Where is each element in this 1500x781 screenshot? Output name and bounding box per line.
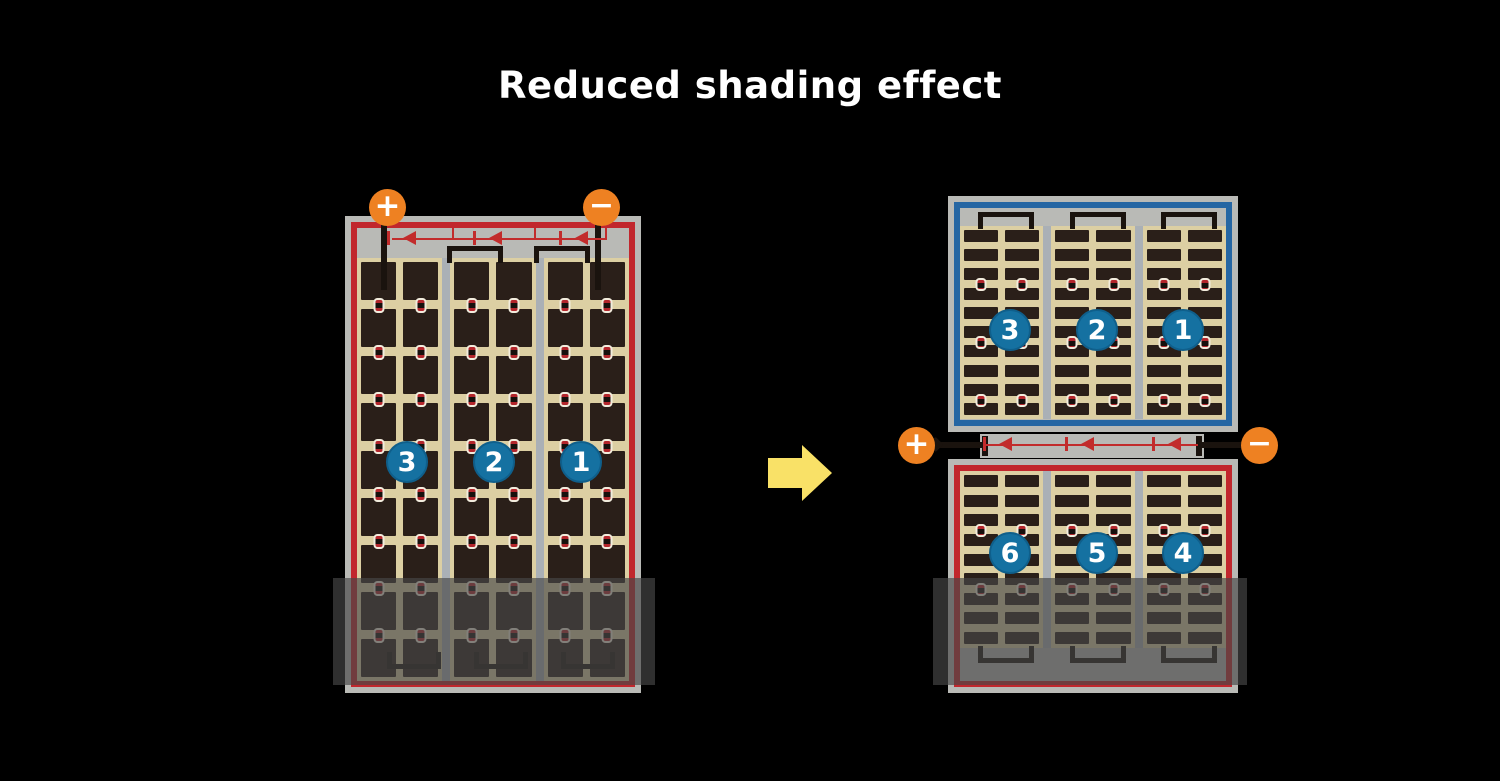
transition-arrow-icon <box>802 445 832 501</box>
terminal-negative: − <box>583 189 620 226</box>
solar-cell <box>1188 514 1222 526</box>
group-number-badge: 2 <box>473 441 515 483</box>
bypass-diode-icon <box>999 437 1012 451</box>
solar-cell <box>496 309 531 347</box>
reduced-shading-diagram: Reduced shading effect + − 3 2 1 <box>0 0 1500 781</box>
solar-cell <box>1096 249 1130 261</box>
solar-cell <box>454 498 489 536</box>
solar-cell <box>454 356 489 394</box>
group-number-badge: 2 <box>1076 309 1118 351</box>
solar-cell <box>964 249 998 261</box>
terminal-negative: − <box>1241 427 1278 464</box>
diode-tap-tick <box>534 228 536 238</box>
group-number-badge: 3 <box>386 441 428 483</box>
solar-cell <box>548 262 583 300</box>
group-number-badge: 6 <box>989 532 1031 574</box>
shading-overlay <box>333 578 655 685</box>
solar-cell <box>1096 475 1130 487</box>
solar-cell <box>590 309 625 347</box>
bypass-diode-icon <box>489 231 502 245</box>
solar-cell <box>1147 514 1181 526</box>
solar-cell <box>1188 475 1222 487</box>
plus-icon: + <box>904 429 930 460</box>
terminal-positive: + <box>369 189 406 226</box>
solar-cell <box>1055 384 1089 396</box>
bypass-diode-icon <box>575 231 588 245</box>
terminal-stem <box>595 222 601 290</box>
solar-cell <box>1188 249 1222 261</box>
solar-cell <box>1055 475 1089 487</box>
solar-cell <box>1147 384 1181 396</box>
plus-icon: + <box>375 191 401 222</box>
solar-cell <box>1188 230 1222 242</box>
terminal-positive: + <box>898 427 935 464</box>
solar-cell <box>1147 230 1181 242</box>
solar-cell <box>964 384 998 396</box>
solar-cell <box>964 475 998 487</box>
solar-cell <box>964 230 998 242</box>
solar-cell <box>1096 268 1130 280</box>
solar-cell <box>361 403 396 441</box>
page-title: Reduced shading effect <box>0 64 1500 107</box>
solar-cell <box>964 268 998 280</box>
group-number-badge: 5 <box>1076 532 1118 574</box>
series-bridge-top <box>1070 212 1126 229</box>
solar-cell <box>548 403 583 441</box>
solar-cell <box>1147 249 1181 261</box>
minus-icon: − <box>589 191 614 221</box>
solar-cell <box>361 498 396 536</box>
solar-cell <box>548 356 583 394</box>
group-number-badge: 4 <box>1162 532 1204 574</box>
bypass-diode-icon <box>1168 437 1181 451</box>
series-bridge-top <box>447 246 503 263</box>
solar-cell <box>496 498 531 536</box>
bypass-diode-line <box>986 444 1198 446</box>
solar-cell <box>1147 268 1181 280</box>
solar-cell <box>403 498 438 536</box>
solar-cell <box>548 498 583 536</box>
solar-cell <box>1005 495 1039 507</box>
solar-cell <box>1005 365 1039 377</box>
solar-cell <box>361 309 396 347</box>
junction-bar <box>1196 436 1202 456</box>
solar-cell <box>454 262 489 300</box>
solar-cell <box>403 403 438 441</box>
group-number-badge: 3 <box>989 309 1031 351</box>
solar-cell <box>1005 268 1039 280</box>
solar-cell <box>403 356 438 394</box>
solar-cell <box>1096 384 1130 396</box>
solar-cell <box>1055 495 1089 507</box>
solar-cell <box>964 495 998 507</box>
solar-cell <box>361 262 396 300</box>
solar-cell <box>1055 230 1089 242</box>
bypass-diode-icon <box>1081 437 1094 451</box>
solar-cell <box>590 498 625 536</box>
solar-cell <box>496 403 531 441</box>
solar-cell <box>1005 384 1039 396</box>
diode-tap-tick <box>452 228 454 238</box>
solar-cell <box>1005 475 1039 487</box>
solar-cell <box>1188 495 1222 507</box>
solar-cell <box>1096 495 1130 507</box>
solar-cell <box>361 356 396 394</box>
solar-cell <box>403 309 438 347</box>
solar-cell <box>1096 514 1130 526</box>
solar-cell <box>590 403 625 441</box>
solar-cell <box>1147 365 1181 377</box>
solar-cell <box>1005 249 1039 261</box>
series-bridge-top <box>1161 212 1217 229</box>
solar-cell <box>1147 495 1181 507</box>
solar-cell <box>1005 514 1039 526</box>
solar-cell <box>1055 268 1089 280</box>
diode-tap-tick <box>605 228 607 238</box>
series-bridge-top <box>978 212 1034 229</box>
group-number-badge: 1 <box>560 441 602 483</box>
bypass-diode-line <box>392 238 607 240</box>
solar-cell <box>964 514 998 526</box>
group-number-badge: 1 <box>1162 309 1204 351</box>
solar-cell <box>1055 249 1089 261</box>
solar-cell <box>1055 365 1089 377</box>
solar-cell <box>1096 230 1130 242</box>
transition-arrow-icon <box>768 458 802 488</box>
solar-cell <box>590 356 625 394</box>
solar-cell <box>1188 365 1222 377</box>
solar-cell <box>496 356 531 394</box>
series-bridge-top <box>534 246 590 263</box>
solar-cell <box>964 365 998 377</box>
solar-cell <box>403 262 438 300</box>
solar-cell <box>1188 268 1222 280</box>
solar-cell <box>1188 384 1222 396</box>
minus-icon: − <box>1247 429 1272 459</box>
solar-cell <box>496 262 531 300</box>
solar-cell <box>454 309 489 347</box>
solar-cell <box>454 403 489 441</box>
bypass-diode-icon <box>403 231 416 245</box>
solar-cell <box>548 309 583 347</box>
solar-cell <box>1055 514 1089 526</box>
solar-cell <box>1147 475 1181 487</box>
solar-cell <box>1005 230 1039 242</box>
shading-overlay <box>933 578 1247 685</box>
solar-cell <box>1096 365 1130 377</box>
